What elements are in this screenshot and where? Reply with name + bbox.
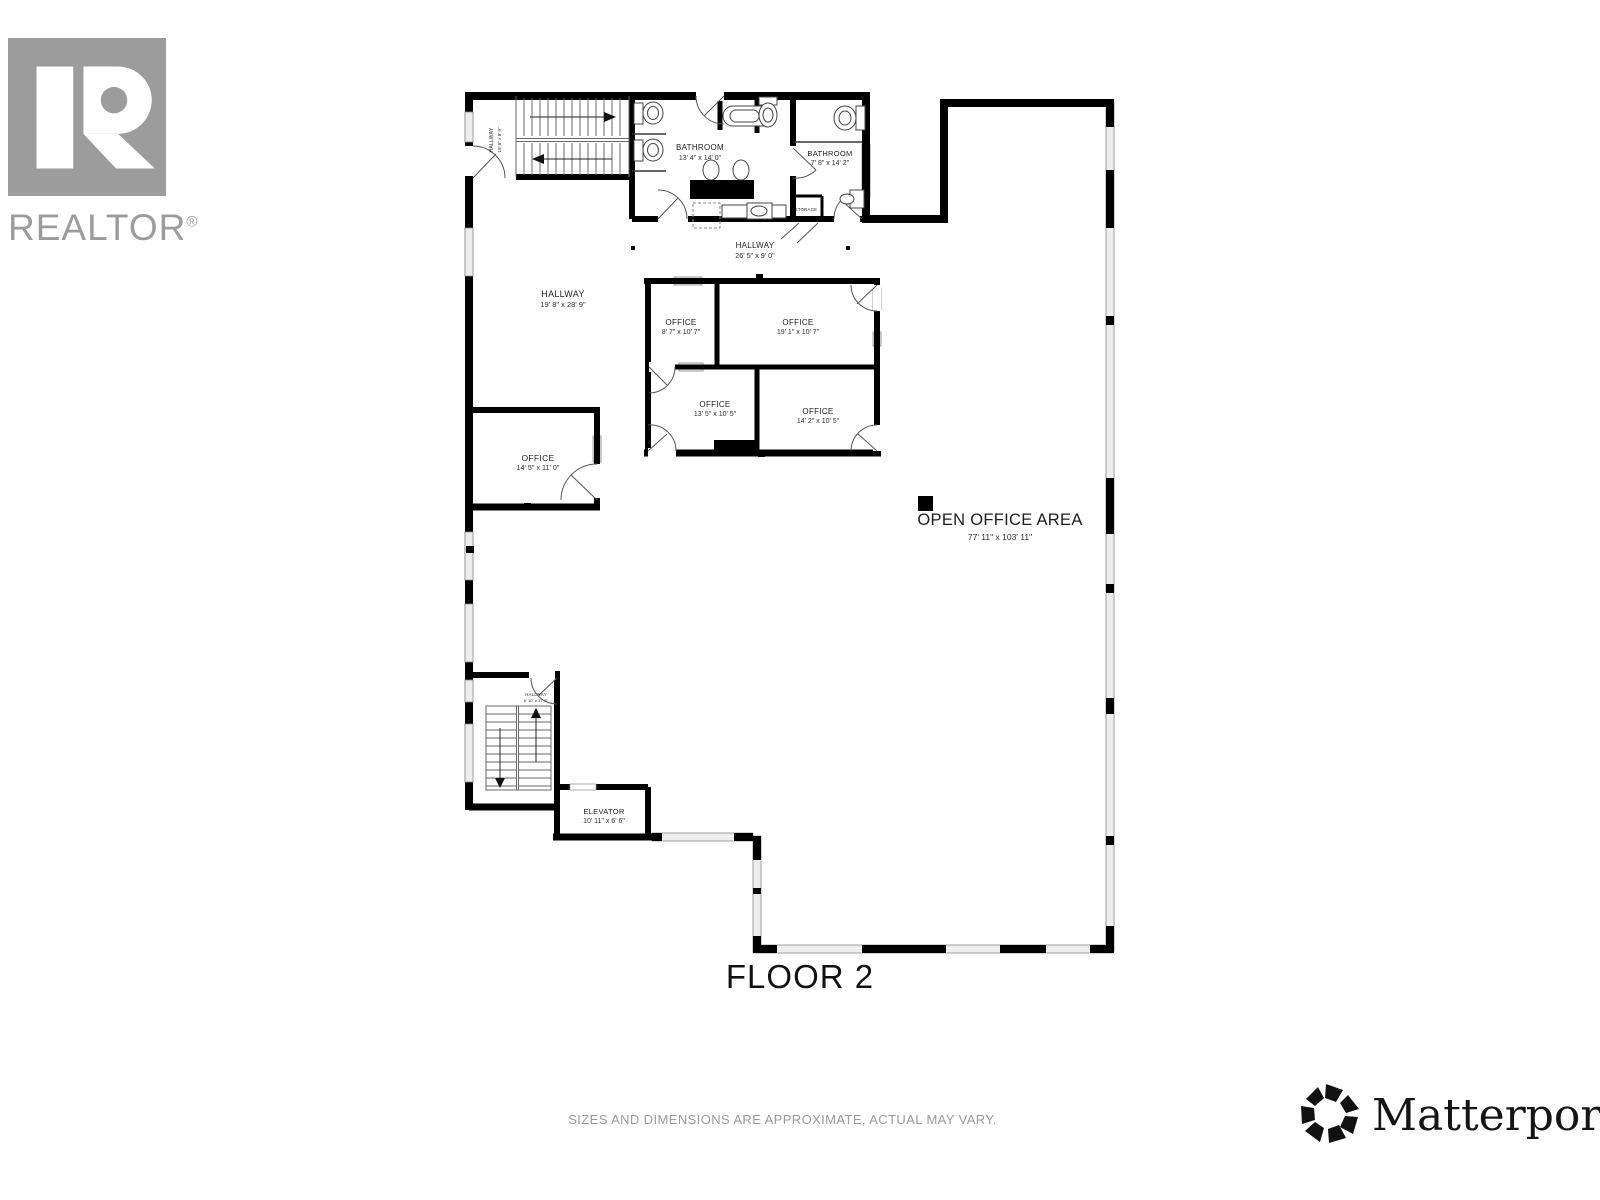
room-label-office-a: OFFICE (665, 318, 696, 327)
room-dims-bathroom-2: 7' 8" x 14' 2" (811, 160, 850, 167)
matterport-wordmark: Matterport® (1372, 1091, 1600, 1138)
toilet-bowl (733, 160, 749, 180)
room-dims-office-c: 13' 5" x 10' 5" (694, 411, 737, 418)
stair-arrow-up (531, 708, 541, 718)
room-label-office-c: OFFICE (699, 400, 730, 409)
room-dims-office-e: 14' 5" x 11' 0" (517, 463, 560, 472)
room-dims-office-d: 14' 2" x 10' 5" (797, 418, 840, 425)
toilet-bowl (703, 160, 719, 180)
office-block-mass (714, 440, 757, 454)
lower-stairs (486, 706, 551, 790)
room-dims-elevator: 10' 11" x 6' 6" (583, 818, 625, 825)
page: REALTOR® (0, 0, 1600, 1200)
room-dims-hallway-main: 19' 8" x 28' 9" (540, 300, 586, 309)
room-label-office-e: OFFICE (522, 453, 555, 463)
room-label-open-office: OPEN OFFICE AREA (917, 511, 1082, 529)
room-dims-office-a: 8' 7" x 10' 7" (662, 329, 701, 336)
shower-area (693, 203, 720, 228)
stair-arrow-down (532, 154, 544, 164)
room-label-hallway-stairs: HALLWAY (489, 127, 495, 152)
room-label-hallway-mid: HALLWAY (736, 241, 775, 250)
room-label-storage: STORAGE (795, 207, 818, 212)
toilet-tank (634, 140, 643, 161)
room-label-bathroom-1: BATHROOM (676, 143, 724, 152)
matterport-icon (1298, 1082, 1362, 1146)
room-dims-hallway-mid: 26' 5" x 9' 0" (735, 251, 775, 260)
elevator-door (570, 784, 596, 790)
toilet-tank (856, 106, 865, 130)
floor-title: FLOOR 2 (640, 958, 960, 996)
room-label-office-d: OFFICE (802, 407, 833, 416)
toilet-tank (634, 103, 643, 124)
room-label-hallway-main: HALLWAY (541, 289, 584, 299)
structural-column (918, 496, 933, 511)
room-label-elevator: ELEVATOR (583, 807, 624, 816)
room-dims-hallway-stairs: 19' 8" x 8' 9" (497, 127, 502, 153)
matterport-logo: Matterport® (1298, 1082, 1600, 1146)
bathroom-partition-block (690, 180, 754, 199)
room-dims-bathroom-1: 13' 4" x 14' 0" (679, 155, 722, 162)
room-label-hallway-lower: HALLWAY (525, 692, 547, 697)
door-swings (473, 96, 877, 704)
upper-stairs (516, 96, 629, 177)
room-dims-open-office: 77' 11" x 103' 11" (968, 532, 1032, 542)
stair-arrow-up (604, 112, 616, 122)
room-dims-hallway-lower: 6' 10" x 17' 8" (524, 698, 549, 703)
room-label-bathroom-2: BATHROOM (807, 149, 852, 158)
room-labels: HALLWAY 19' 8" x 8' 9" BATHROOM 13' 4" x… (489, 127, 1083, 825)
room-dims-office-b: 19' 1" x 10' 7" (777, 329, 820, 336)
room-label-office-b: OFFICE (782, 318, 813, 327)
floor-plan: HALLWAY 19' 8" x 8' 9" BATHROOM 13' 4" x… (0, 0, 1600, 1200)
